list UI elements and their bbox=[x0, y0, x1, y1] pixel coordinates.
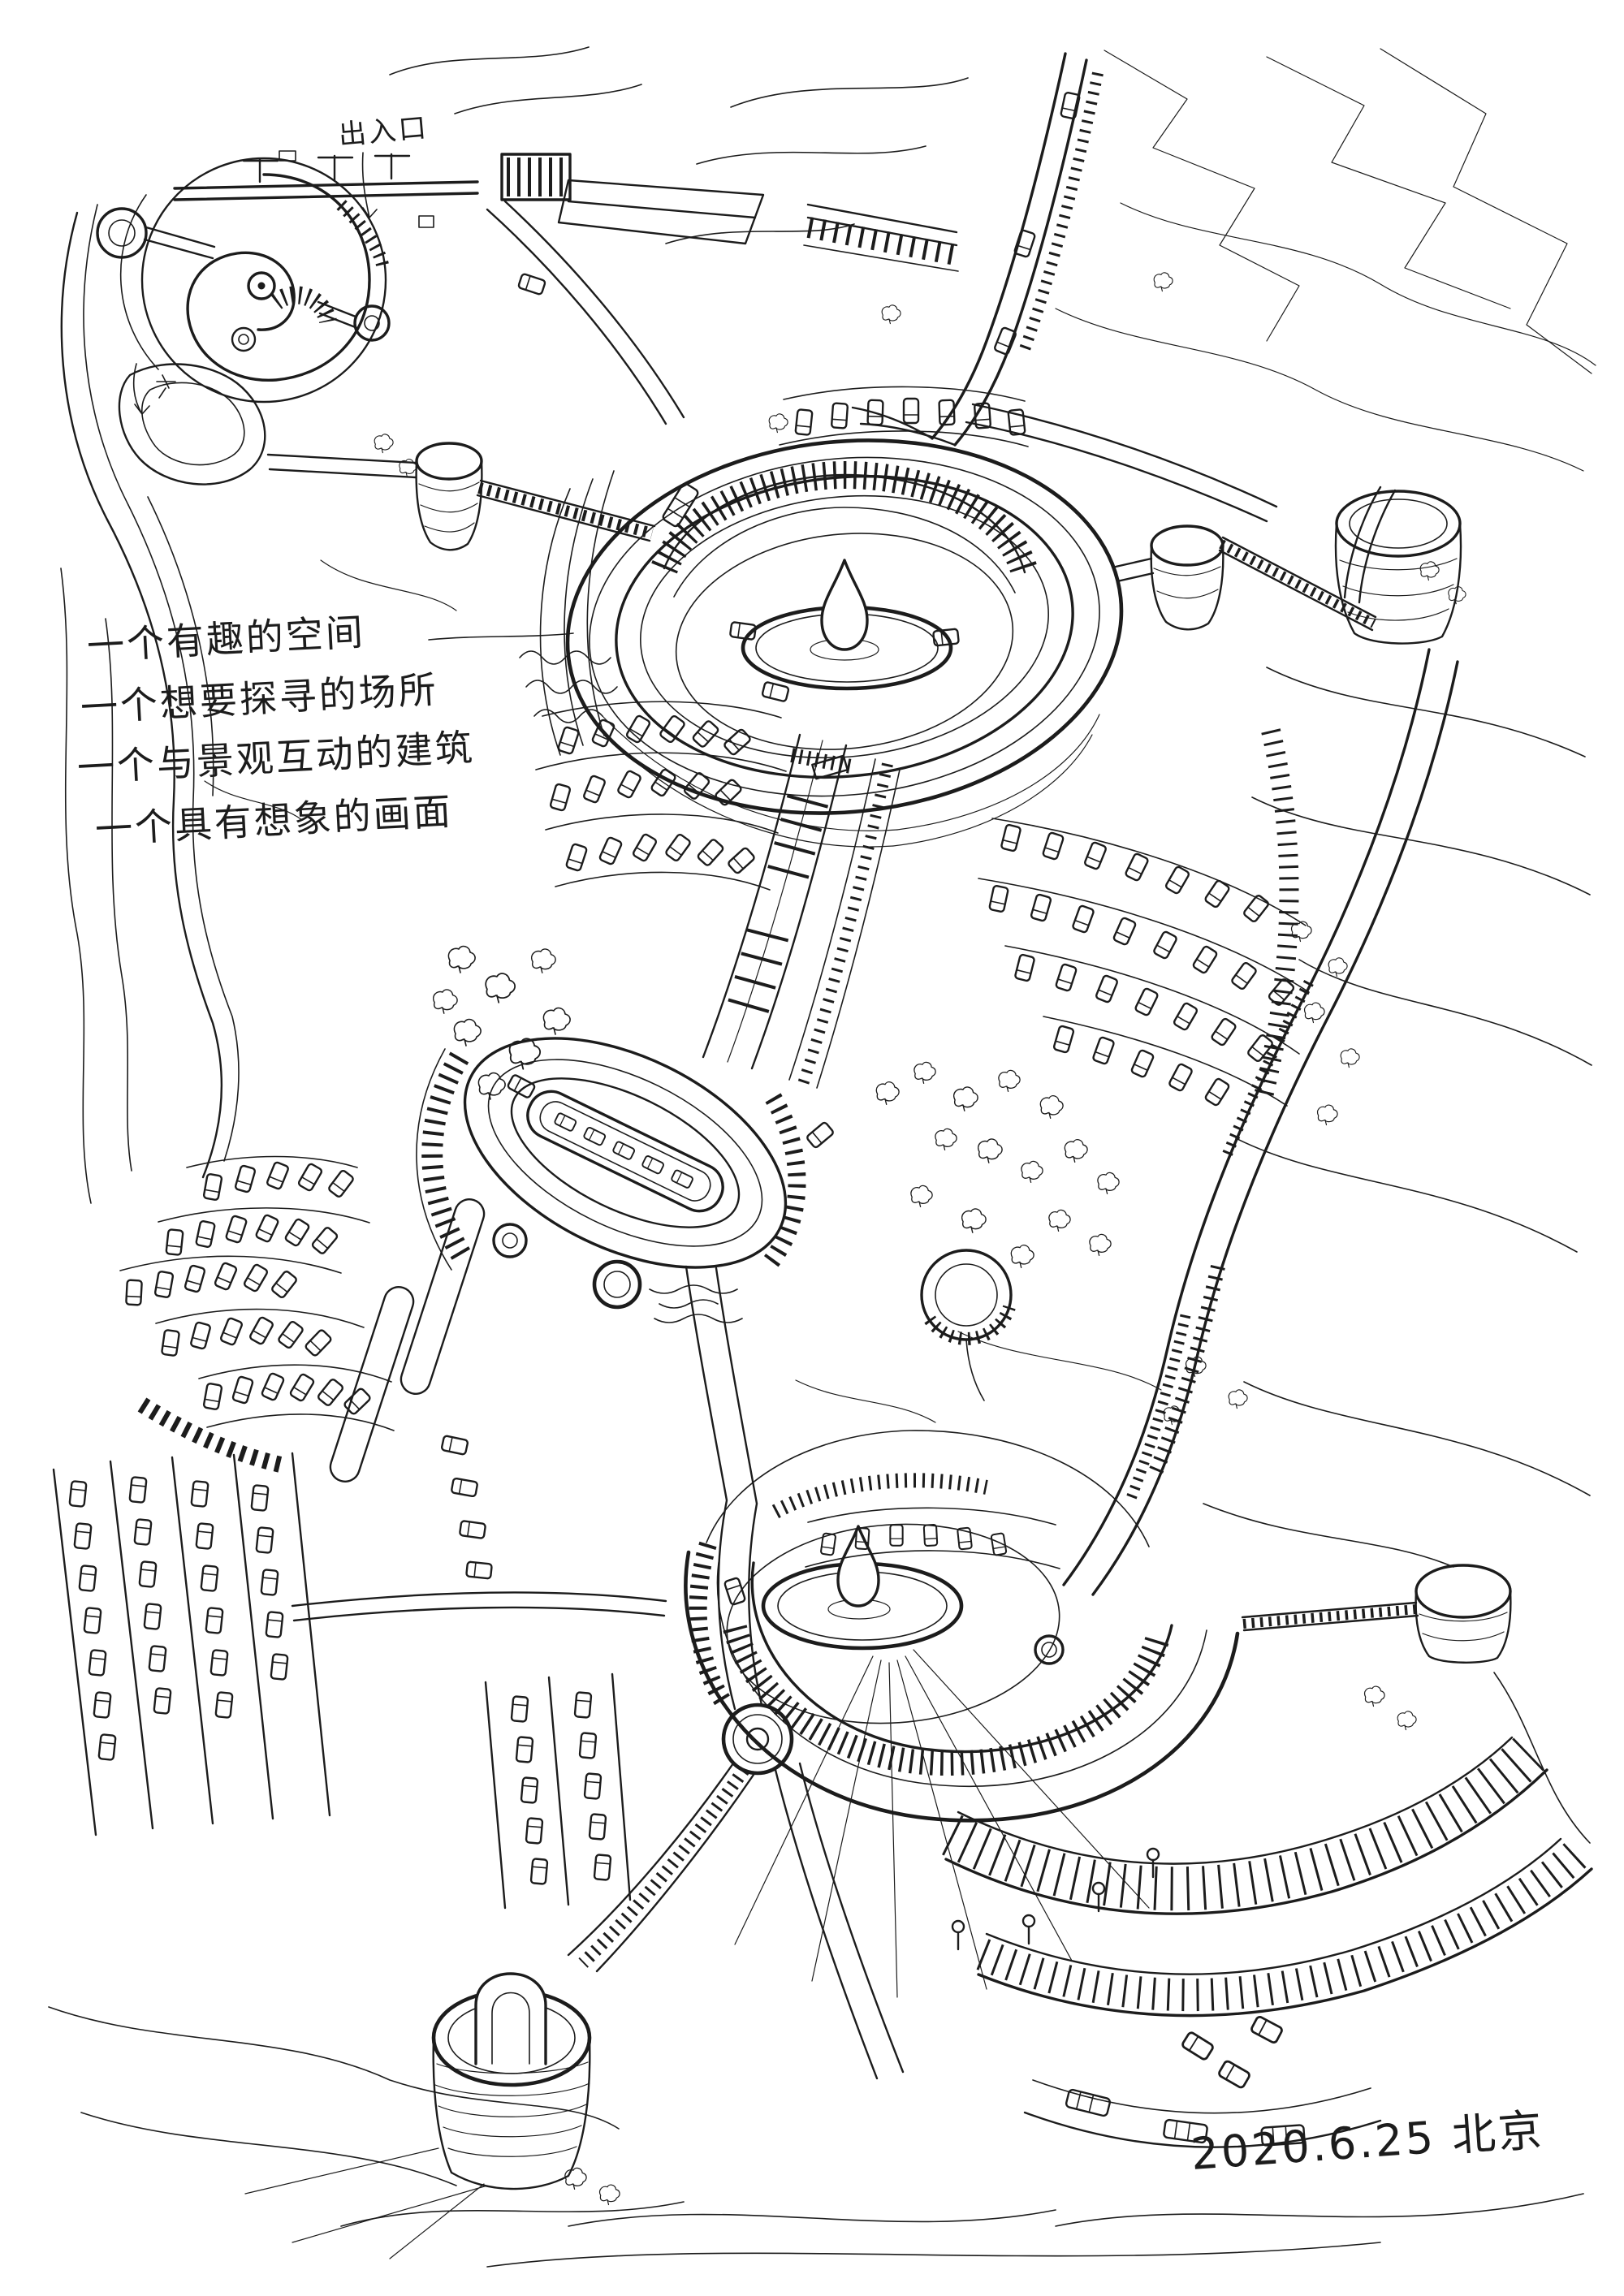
arch-gate bbox=[476, 1974, 546, 2064]
car bbox=[994, 327, 1017, 356]
masterplan-sketch: 一个有趣的空间 一个想要探寻的场所 一个与景观互动的建筑 一个具有想象的画面 出… bbox=[0, 0, 1624, 2296]
design-note-1: 一个有趣的空间 bbox=[86, 610, 366, 668]
radial-paths bbox=[735, 1650, 1149, 1997]
lamp bbox=[1023, 1915, 1034, 1944]
car bbox=[1014, 230, 1035, 257]
car bbox=[806, 1121, 835, 1148]
parking-upper-left bbox=[536, 701, 786, 890]
water-drop-sculpture bbox=[838, 1526, 879, 1606]
colonnade bbox=[664, 475, 1025, 572]
colonnade bbox=[735, 1628, 1157, 1763]
car bbox=[518, 274, 546, 295]
bottom-tower bbox=[245, 1974, 590, 2259]
axis-promenade bbox=[703, 735, 900, 1088]
slope-hatching bbox=[341, 205, 1289, 1478]
sketch-sheet: 一个有趣的空间 一个想要探寻的场所 一个与景观互动的建筑 一个具有想象的画面 出… bbox=[0, 0, 1624, 2296]
kiosk bbox=[232, 328, 255, 351]
fence-hatch bbox=[142, 1405, 284, 1465]
parking-mid-columns bbox=[486, 1674, 630, 1908]
car bbox=[762, 682, 788, 702]
plaza-island bbox=[520, 1084, 730, 1219]
kiosk bbox=[494, 1224, 526, 1257]
design-note-3: 一个与景观互动的建筑 bbox=[76, 725, 476, 790]
ribbed-canopy bbox=[983, 1854, 1576, 1995]
car bbox=[1060, 92, 1080, 119]
entrance-area bbox=[175, 151, 958, 271]
parking-left-fan bbox=[120, 1157, 492, 1579]
lower-right-tank bbox=[1242, 1565, 1510, 1663]
parking-upper-right bbox=[978, 818, 1309, 1106]
pond bbox=[119, 364, 265, 485]
bus bbox=[662, 482, 699, 528]
bottom-right-terraces bbox=[946, 1737, 1592, 2147]
lane-island bbox=[397, 1196, 487, 1398]
roads bbox=[107, 54, 1458, 2078]
signature-date: 2020.6.25 北京 bbox=[1190, 2104, 1546, 2180]
spiral-plaza bbox=[62, 158, 389, 520]
round-pavilion bbox=[594, 1262, 640, 1307]
viaduct bbox=[804, 205, 958, 271]
design-note-2: 一个想要探寻的场所 bbox=[80, 667, 439, 730]
car bbox=[1218, 2060, 1250, 2088]
roundabout bbox=[97, 209, 146, 257]
parking-row bbox=[780, 386, 1028, 447]
parking-left-columns bbox=[54, 1453, 330, 1835]
car bbox=[1250, 2016, 1283, 2044]
trees bbox=[374, 273, 1466, 2205]
upper-circular-building bbox=[520, 386, 1140, 847]
design-note-4: 一个具有想象的画面 bbox=[94, 789, 454, 852]
water-lines bbox=[650, 1285, 742, 1323]
water-drop-sculpture bbox=[822, 560, 867, 650]
car bbox=[1181, 2031, 1214, 2061]
leader-line bbox=[429, 633, 573, 640]
ribbed-canopy bbox=[952, 1754, 1529, 1888]
lamp bbox=[952, 1921, 964, 1949]
water-tank-tower bbox=[1220, 487, 1461, 644]
oval-plaza bbox=[417, 991, 834, 1323]
entrance-label: 出入口 bbox=[337, 111, 430, 152]
car bbox=[508, 1074, 536, 1098]
right-tower bbox=[1116, 526, 1223, 629]
stepped-pavilion bbox=[922, 1250, 1011, 1400]
turret bbox=[1035, 1636, 1063, 1664]
